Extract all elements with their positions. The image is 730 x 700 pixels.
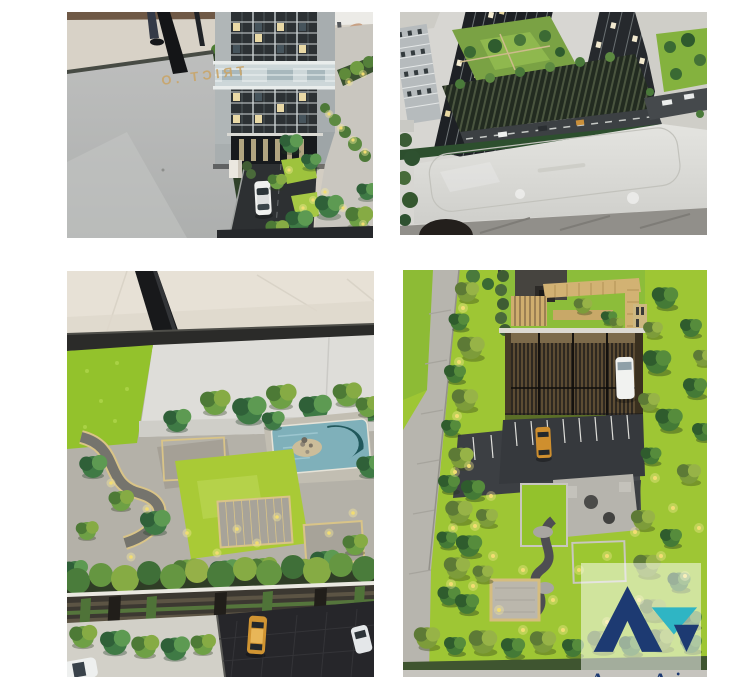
- white-van: [614, 357, 636, 404]
- pergola: [511, 296, 547, 326]
- rooftop-garden-illustration: [67, 271, 374, 677]
- parking-area: [499, 414, 645, 484]
- photo-aerial-lowrise-garden[interactable]: Accom Asia: [403, 270, 707, 677]
- tower-entrance-illustration: [67, 12, 373, 238]
- photo-aerial-towers[interactable]: [400, 12, 707, 235]
- tower-building: [213, 12, 337, 169]
- watermark-text: Accom Asia: [591, 671, 692, 677]
- photo-tower-entrance[interactable]: TRICT .O: [67, 12, 373, 238]
- photo-rooftop-garden-pool[interactable]: [67, 271, 374, 677]
- aerial-towers-illustration: [400, 12, 707, 235]
- watermark: Accom Asia: [581, 563, 701, 670]
- accom-asia-logo-icon: [581, 566, 701, 670]
- sky-lounge: [215, 64, 335, 88]
